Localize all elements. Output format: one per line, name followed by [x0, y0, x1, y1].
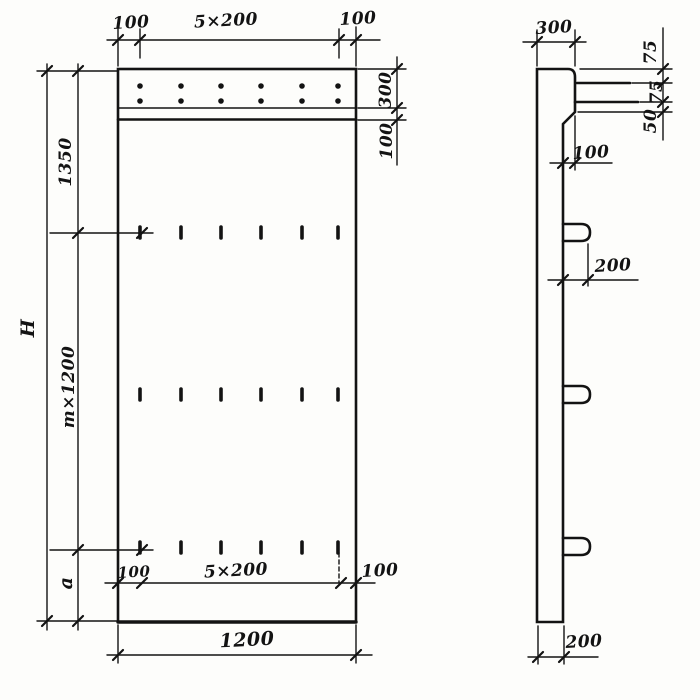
anchor-dot	[258, 98, 264, 104]
dim-bottom-1200: 1200	[219, 628, 275, 653]
drawing-sheet: 100 5×200 100 H 1350 m×1200 a 300 100 10…	[0, 0, 700, 700]
dim-left-1350: 1350	[56, 137, 76, 186]
dim-top-right-100: 100	[339, 8, 377, 30]
dim-top-center-5x200: 5×200	[193, 9, 258, 32]
dim-side-75-middle: 75	[647, 80, 667, 105]
slot-marks	[140, 227, 338, 553]
panel-outline	[118, 69, 356, 622]
anchor-dot	[218, 83, 224, 89]
anchor-dot	[299, 98, 305, 104]
lug	[563, 538, 590, 555]
side-lugs	[563, 224, 590, 555]
lug	[563, 224, 590, 241]
anchor-dot	[178, 83, 184, 89]
drawing-geometry	[0, 0, 700, 700]
anchor-dot	[178, 98, 184, 104]
dim-left-a: a	[55, 577, 77, 590]
dim-side-top-300: 300	[535, 17, 573, 39]
dim-lower-left-100: 100	[117, 562, 151, 582]
anchor-dot	[258, 83, 264, 89]
anchor-dot	[137, 83, 143, 89]
dim-left-H: H	[17, 319, 39, 337]
dim-side-50: 50	[641, 109, 661, 134]
anchor-dot	[299, 83, 305, 89]
lug	[563, 386, 590, 403]
front-top-dim	[107, 27, 380, 66]
dim-side-lug-200: 200	[594, 255, 632, 277]
dim-left-mx1200: m×1200	[59, 346, 79, 429]
dim-side-offset-100: 100	[572, 142, 610, 164]
dim-top-left-100: 100	[112, 12, 150, 34]
dim-lower-right-100: 100	[361, 560, 399, 582]
dim-right-300: 300	[376, 72, 396, 109]
dim-lower-center-5x200: 5×200	[203, 559, 268, 582]
dim-side-bottom-200: 200	[565, 631, 603, 653]
anchor-dot	[218, 98, 224, 104]
front-left-dims	[37, 64, 153, 630]
anchor-dot	[335, 98, 341, 104]
anchor-dot	[335, 83, 341, 89]
anchor-dots	[137, 83, 341, 104]
dim-right-100: 100	[377, 123, 397, 160]
dim-side-75-upper: 75	[641, 40, 661, 65]
anchor-dot	[137, 98, 143, 104]
